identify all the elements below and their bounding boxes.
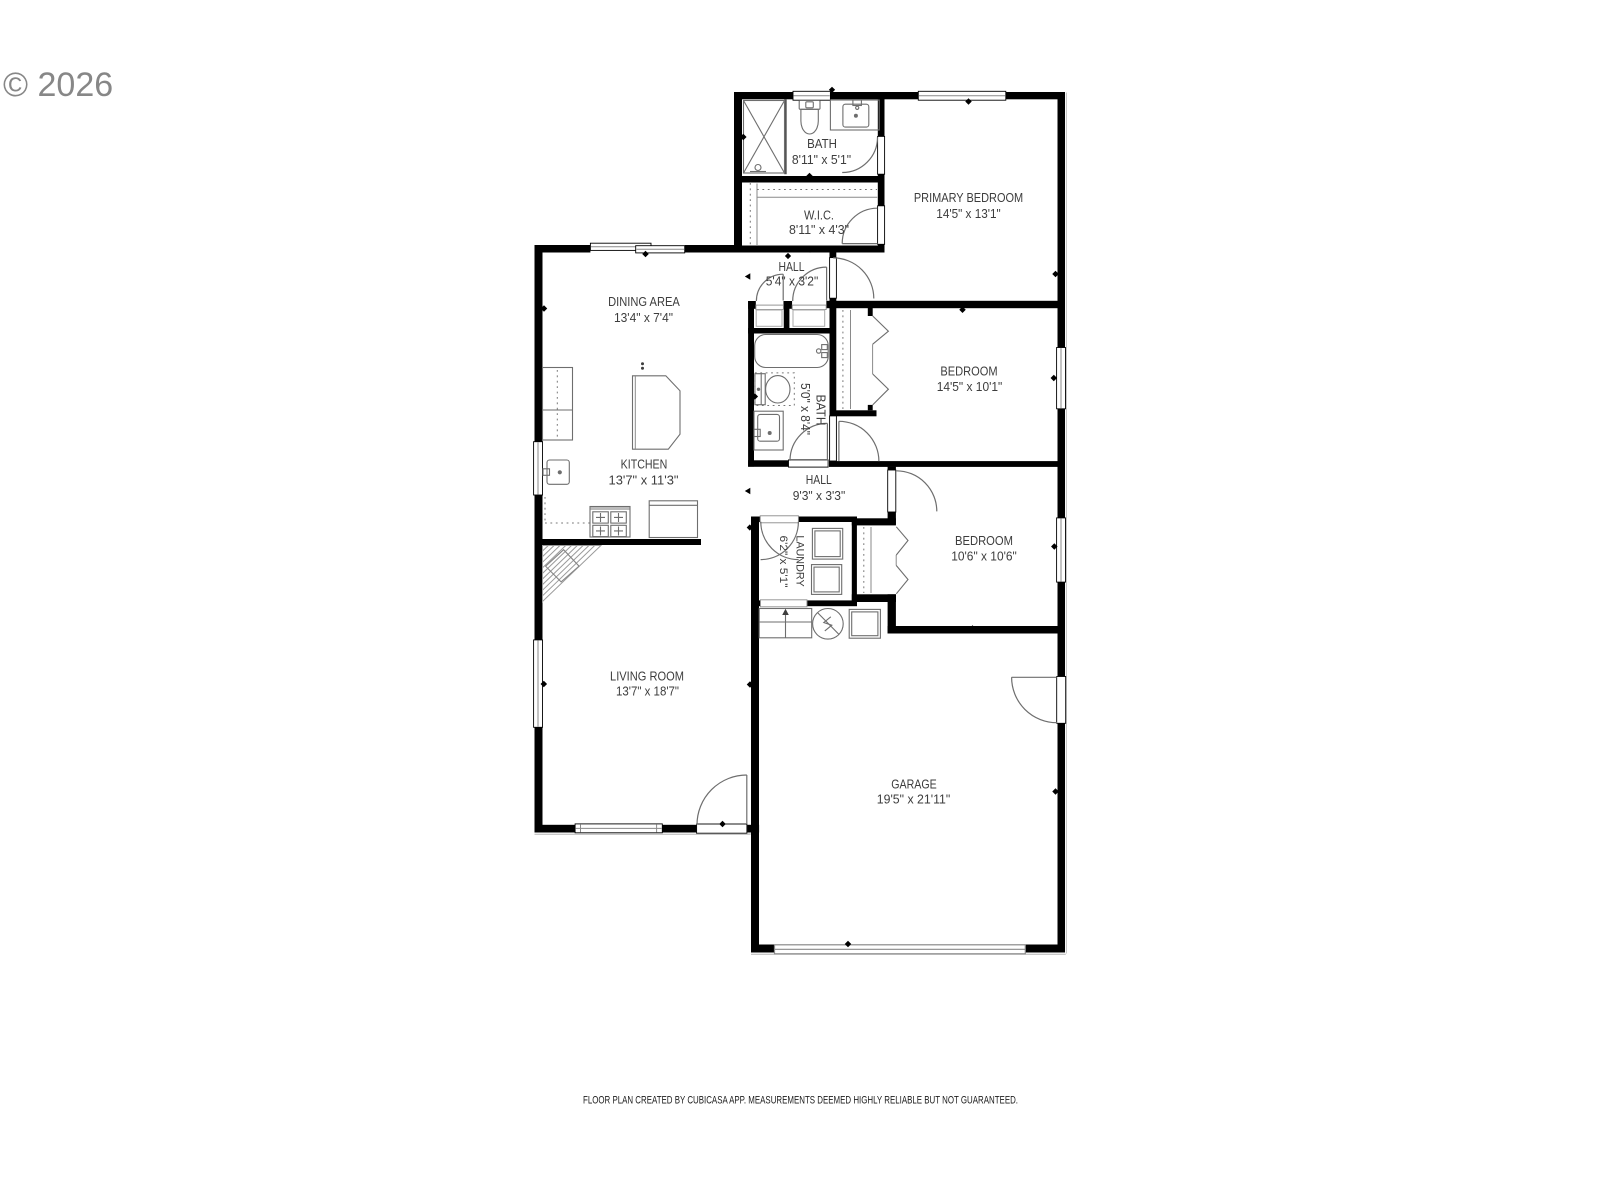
svg-text:W.I.C.: W.I.C. — [804, 209, 834, 223]
svg-text:FLOOR PLAN CREATED BY CUBICASA: FLOOR PLAN CREATED BY CUBICASA APP. MEAS… — [583, 1095, 1018, 1107]
svg-text:HALL: HALL — [779, 260, 805, 274]
svg-text:DINING AREA: DINING AREA — [608, 295, 680, 309]
svg-text:5'4" x 3'2": 5'4" x 3'2" — [766, 275, 819, 289]
svg-text:8'11" x 4'3": 8'11" x 4'3" — [789, 223, 849, 237]
svg-text:PRIMARY BEDROOM: PRIMARY BEDROOM — [914, 191, 1023, 205]
svg-text:10'6" x 10'6": 10'6" x 10'6" — [951, 550, 1017, 564]
svg-text:HALL: HALL — [806, 473, 832, 487]
svg-text:BATH: BATH — [807, 137, 837, 151]
svg-text:KITCHEN: KITCHEN — [621, 458, 668, 472]
svg-text:13'7" x 18'7": 13'7" x 18'7" — [616, 685, 679, 699]
svg-text:14'5" x 13'1": 14'5" x 13'1" — [936, 207, 1000, 221]
svg-text:BEDROOM: BEDROOM — [940, 365, 997, 379]
svg-text:5'0" x 8'4": 5'0" x 8'4" — [798, 383, 812, 435]
svg-text:BEDROOM: BEDROOM — [955, 534, 1013, 548]
svg-text:19'5" x 21'11": 19'5" x 21'11" — [877, 793, 951, 807]
svg-text:8'11" x 5'1": 8'11" x 5'1" — [792, 153, 851, 167]
svg-text:6'2" x 5'1": 6'2" x 5'1" — [777, 536, 789, 588]
svg-text:GARAGE: GARAGE — [891, 778, 937, 792]
svg-text:13'7" x 11'3": 13'7" x 11'3" — [609, 474, 679, 488]
svg-text:13'4" x 7'4": 13'4" x 7'4" — [614, 311, 673, 325]
svg-text:BATH: BATH — [814, 395, 828, 426]
svg-text:9'3" x 3'3": 9'3" x 3'3" — [793, 489, 846, 503]
svg-text:14'5" x 10'1": 14'5" x 10'1" — [937, 380, 1003, 394]
svg-text:LAUNDRY: LAUNDRY — [793, 535, 805, 587]
svg-text:LIVING ROOM: LIVING ROOM — [610, 670, 684, 684]
